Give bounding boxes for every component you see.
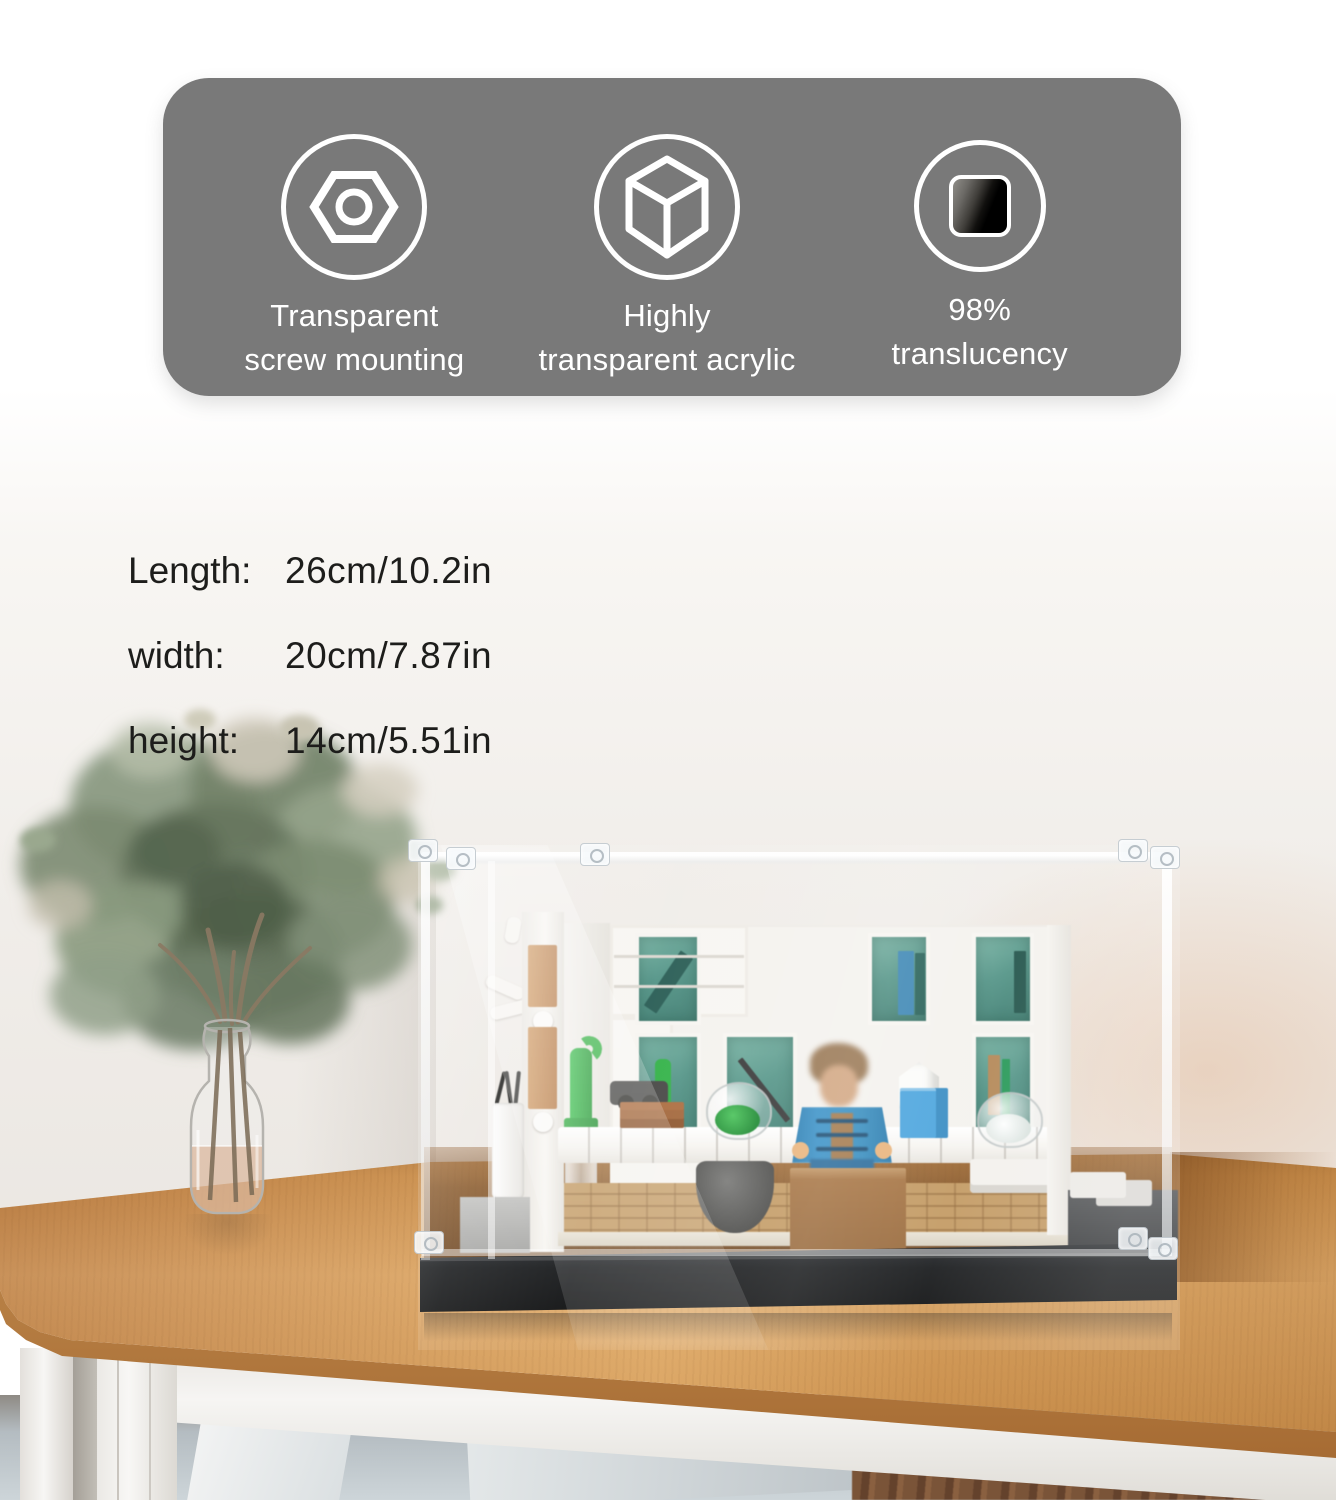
lego-minifigure-head: [810, 1043, 868, 1109]
cabinet-side-jamb: [1047, 925, 1071, 1235]
white-lego-pieces: [1070, 1172, 1126, 1198]
feature-item-transparent-acrylic: Highly transparent acrylic: [511, 134, 824, 396]
corner-clip: [1118, 1227, 1148, 1250]
feature-item-screw-mounting: Transparent screw mounting: [198, 134, 511, 396]
corner-clip: [414, 1231, 444, 1254]
feature-icon-circle: [914, 140, 1046, 272]
corner-clip: [1118, 839, 1148, 862]
acrylic-left-edge: [421, 854, 430, 1260]
dimension-label: height:: [128, 720, 285, 762]
dimension-value: 20cm/7.87in: [285, 635, 492, 677]
gray-platform: [460, 1197, 530, 1253]
acrylic-right-edge: [1162, 854, 1172, 1256]
corner-clip: [408, 839, 438, 862]
feature-icon-circle: [281, 134, 427, 280]
corner-clip: [580, 843, 610, 866]
dimension-value: 14cm/5.51in: [285, 720, 492, 762]
feature-label: Highly transparent acrylic: [538, 294, 795, 382]
cube-icon: [625, 155, 709, 259]
minifigure-hand: [792, 1142, 809, 1159]
base-reflection: [424, 1313, 1172, 1341]
minifigure-hand: [875, 1142, 892, 1159]
acrylic-top-edge: [420, 852, 1172, 865]
corner-clip: [1148, 1237, 1178, 1260]
translucency-swatch-icon: [949, 175, 1011, 237]
table-leg: [97, 1354, 177, 1500]
dimension-label: width:: [128, 635, 285, 677]
feature-label: 98% translucency: [891, 288, 1067, 376]
feature-label: Transparent screw mounting: [244, 294, 464, 382]
acrylic-bottom-edge: [422, 1249, 1172, 1256]
table-leg: [20, 1348, 73, 1500]
feature-icon-circle: [594, 134, 740, 280]
feature-item-translucency: 98% translucency: [823, 134, 1136, 396]
dimension-label: Length:: [128, 550, 285, 592]
table-shadow: [1170, 1152, 1336, 1282]
cabinet-glass-door: [972, 933, 1034, 1025]
dimension-value: 26cm/10.2in: [285, 550, 492, 592]
wooden-lectern: [790, 1168, 906, 1252]
hex-nut-icon: [308, 167, 400, 247]
dimension-row: height: 14cm/5.51in: [128, 720, 492, 762]
glass-dome: [706, 1082, 772, 1140]
blue-box: [900, 1088, 948, 1138]
table-leg-gap: [73, 1352, 97, 1500]
cabinet-glass-door: [868, 933, 930, 1025]
corner-clip: [446, 847, 476, 870]
dimension-row: width: 20cm/7.87in: [128, 635, 492, 677]
acrylic-display-case: [418, 845, 1180, 1350]
acrylic-front-left-edge: [488, 861, 495, 1259]
dimension-row: Length: 26cm/10.2in: [128, 550, 492, 592]
corner-clip: [1150, 846, 1180, 869]
dimensions-list: Length: 26cm/10.2in width: 20cm/7.87in h…: [128, 550, 492, 805]
glass-dome: [977, 1092, 1043, 1148]
white-appliance: [970, 1159, 1054, 1193]
cabinet-glass-door: [635, 933, 701, 1025]
product-infographic: Transparent screw mounting Highly transp…: [0, 0, 1336, 1500]
feature-banner: Transparent screw mounting Highly transp…: [163, 78, 1181, 396]
